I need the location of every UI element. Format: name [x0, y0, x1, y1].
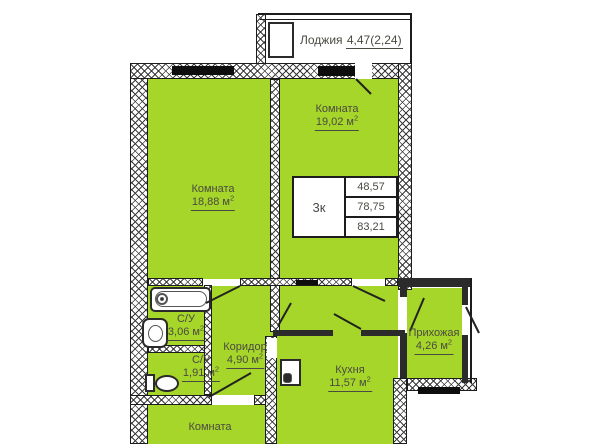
info-table: 3к 48,57 78,75 83,21 — [292, 176, 398, 238]
area-total: 83,21 — [346, 218, 396, 236]
loggia-name: Лоджия — [300, 33, 343, 47]
corridor-label: Коридор 4,90 м2 — [223, 341, 266, 369]
room-area: 3,06 м2 — [167, 326, 205, 341]
loggia-area: 4,47(2,24) — [346, 33, 403, 49]
room-top-right-label: Комната 19,02 м2 — [315, 103, 359, 131]
room-name: Комната — [188, 421, 231, 434]
room-area: 1,91 м2 — [182, 367, 220, 382]
room-area: 19,02 м2 — [315, 116, 359, 131]
bathroom-main-label: С/У 3,06 м2 — [167, 313, 205, 341]
area-usable: 78,75 — [346, 198, 396, 218]
floor-plan: Лоджия 4,47(2,24) Комната 18,88 м2 Комна… — [0, 0, 600, 444]
loggia-label: Лоджия 4,47(2,24) — [300, 33, 403, 49]
hallway-label: Прихожая 4,26 м2 — [409, 327, 460, 355]
area-living: 48,57 — [346, 178, 396, 198]
room-area: 11,57 м2 — [328, 377, 372, 392]
kitchen-label: Кухня 11,57 м2 — [328, 364, 372, 392]
door-swing-entrance — [466, 307, 479, 333]
bathroom-small-label: С/У 1,91 м2 — [182, 354, 220, 382]
room-top-left-label: Комната 18,88 м2 — [191, 183, 235, 211]
room-bottom-label: Комната — [188, 421, 231, 434]
room-name: Кухня — [328, 364, 372, 377]
apartment-type: 3к — [294, 178, 346, 236]
door-swing-balcony — [356, 79, 371, 94]
room-area: 4,90 м2 — [226, 354, 264, 369]
room-area: 4,26 м2 — [415, 340, 453, 355]
room-name: Комната — [191, 183, 235, 196]
door-swing-room-right — [353, 286, 385, 301]
room-name: Комната — [315, 103, 359, 116]
door-swing-corridor — [278, 303, 291, 326]
door-swing-room-left — [206, 286, 240, 303]
room-area: 18,88 м2 — [191, 196, 235, 211]
door-swing-kitchen — [334, 314, 361, 329]
